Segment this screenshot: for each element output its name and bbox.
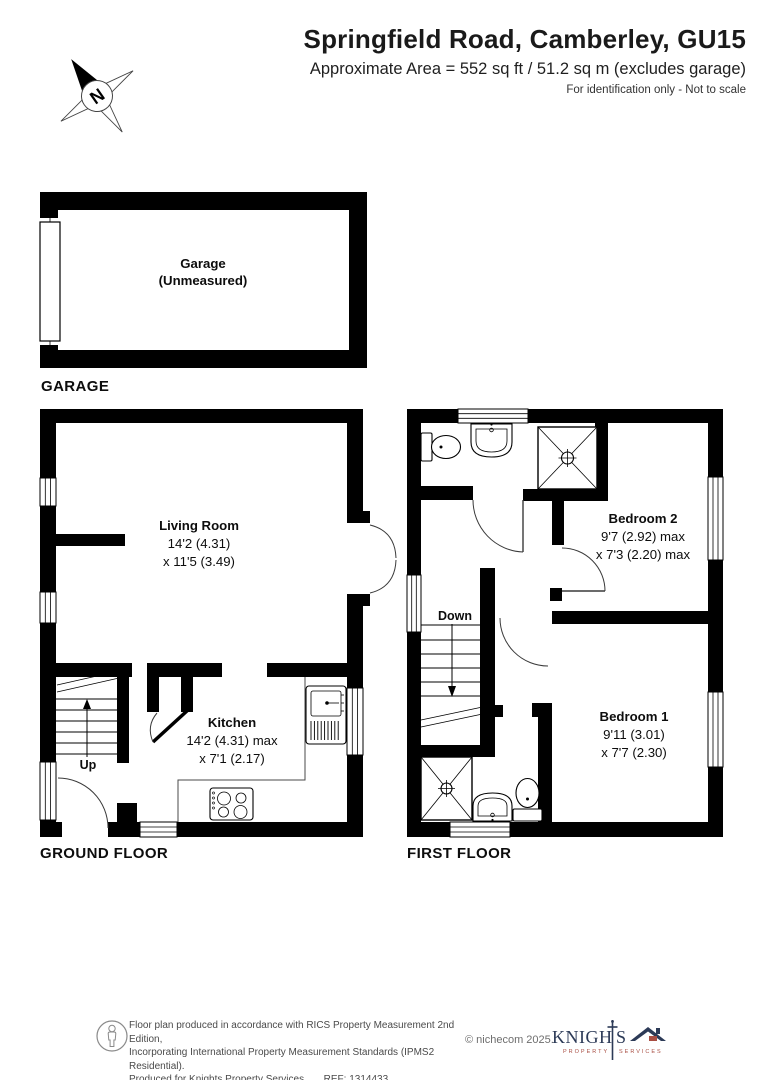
ground-floor-caption: GROUND FLOOR (40, 845, 168, 862)
bedroom2-dim1: 9'7 (2.92) max (601, 529, 685, 544)
floorplan-page: Springfield Road, Camberley, GU15 Approx… (0, 0, 764, 1080)
ground-floor-plan: Up (40, 409, 396, 862)
ensuite-toilet (513, 779, 542, 822)
garage-plan: Garage (Unmeasured) GARAGE (40, 192, 367, 395)
bathroom-shower (538, 427, 597, 489)
bathroom-toilet (421, 433, 461, 461)
living-room-dim1: 14'2 (4.31) (168, 536, 231, 551)
nichecom-copyright: © nichecom 2025. (465, 1034, 554, 1046)
garage-caption: GARAGE (41, 378, 109, 395)
bedroom2-dim2: x 7'3 (2.20) max (596, 547, 691, 562)
down-label: Down (438, 609, 472, 623)
up-label: Up (80, 758, 97, 772)
bedroom1-label: Bedroom 1 (600, 709, 669, 724)
disclaimer-line3: Produced for Knights Property Services. … (129, 1073, 465, 1080)
ensuite-shower (421, 757, 472, 820)
living-room-label: Living Room (159, 518, 239, 533)
disclaimer-line2: Incorporating International Property Mea… (129, 1046, 465, 1073)
first-floor-caption: FIRST FLOOR (407, 845, 511, 862)
kitchen-label: Kitchen (208, 715, 256, 730)
logo-sub-services: SERVICES (619, 1049, 663, 1055)
bedroom2-label: Bedroom 2 (609, 511, 678, 526)
kitchen-sink (306, 686, 346, 744)
down-arrow (448, 686, 456, 697)
garage-room-label: Garage (180, 256, 225, 271)
kitchen-dim1: 14'2 (4.31) max (186, 733, 278, 748)
reference-number: REF: 1314433 (324, 1074, 389, 1080)
bedroom1-door-arc (500, 618, 548, 666)
kitchen-hob (210, 788, 253, 820)
logo-text-s: S (616, 1027, 626, 1047)
bedroom1-dim2: x 7'7 (2.30) (601, 745, 667, 760)
bathroom-door-arc (473, 500, 523, 552)
bathroom-basin (471, 423, 512, 457)
floorplan-drawing: Garage (Unmeasured) GARAGE (0, 0, 764, 1080)
garage-room-note: (Unmeasured) (159, 273, 248, 288)
person-icon (94, 1019, 132, 1057)
living-room-dim2: x 11'5 (3.49) (163, 554, 235, 569)
kitchen-dim2: x 7'1 (2.17) (199, 751, 265, 766)
logo-text-knigh: KNIGH (552, 1027, 613, 1047)
front-door-arc (58, 778, 108, 828)
up-arrow (83, 699, 91, 709)
logo-sub-property: PROPERTY (563, 1049, 609, 1055)
garage-door (40, 222, 60, 341)
disclaimer-line1: Floor plan produced in accordance with R… (129, 1019, 465, 1046)
disclaimer: Floor plan produced in accordance with R… (129, 1019, 465, 1080)
french-door-arc-bottom (370, 560, 396, 593)
roof-icon (630, 1027, 666, 1041)
kitchen-door-leaf (153, 710, 188, 742)
first-floor-plan: Down (407, 409, 723, 862)
bedroom1-dim1: 9'11 (3.01) (603, 727, 665, 742)
ensuite-basin (473, 793, 512, 821)
knights-property-services-logo: KNIGH S PROPERTY SERVICES (551, 1016, 679, 1066)
produced-for: Produced for Knights Property Services. (129, 1074, 307, 1080)
french-door-arc-top (370, 525, 396, 558)
